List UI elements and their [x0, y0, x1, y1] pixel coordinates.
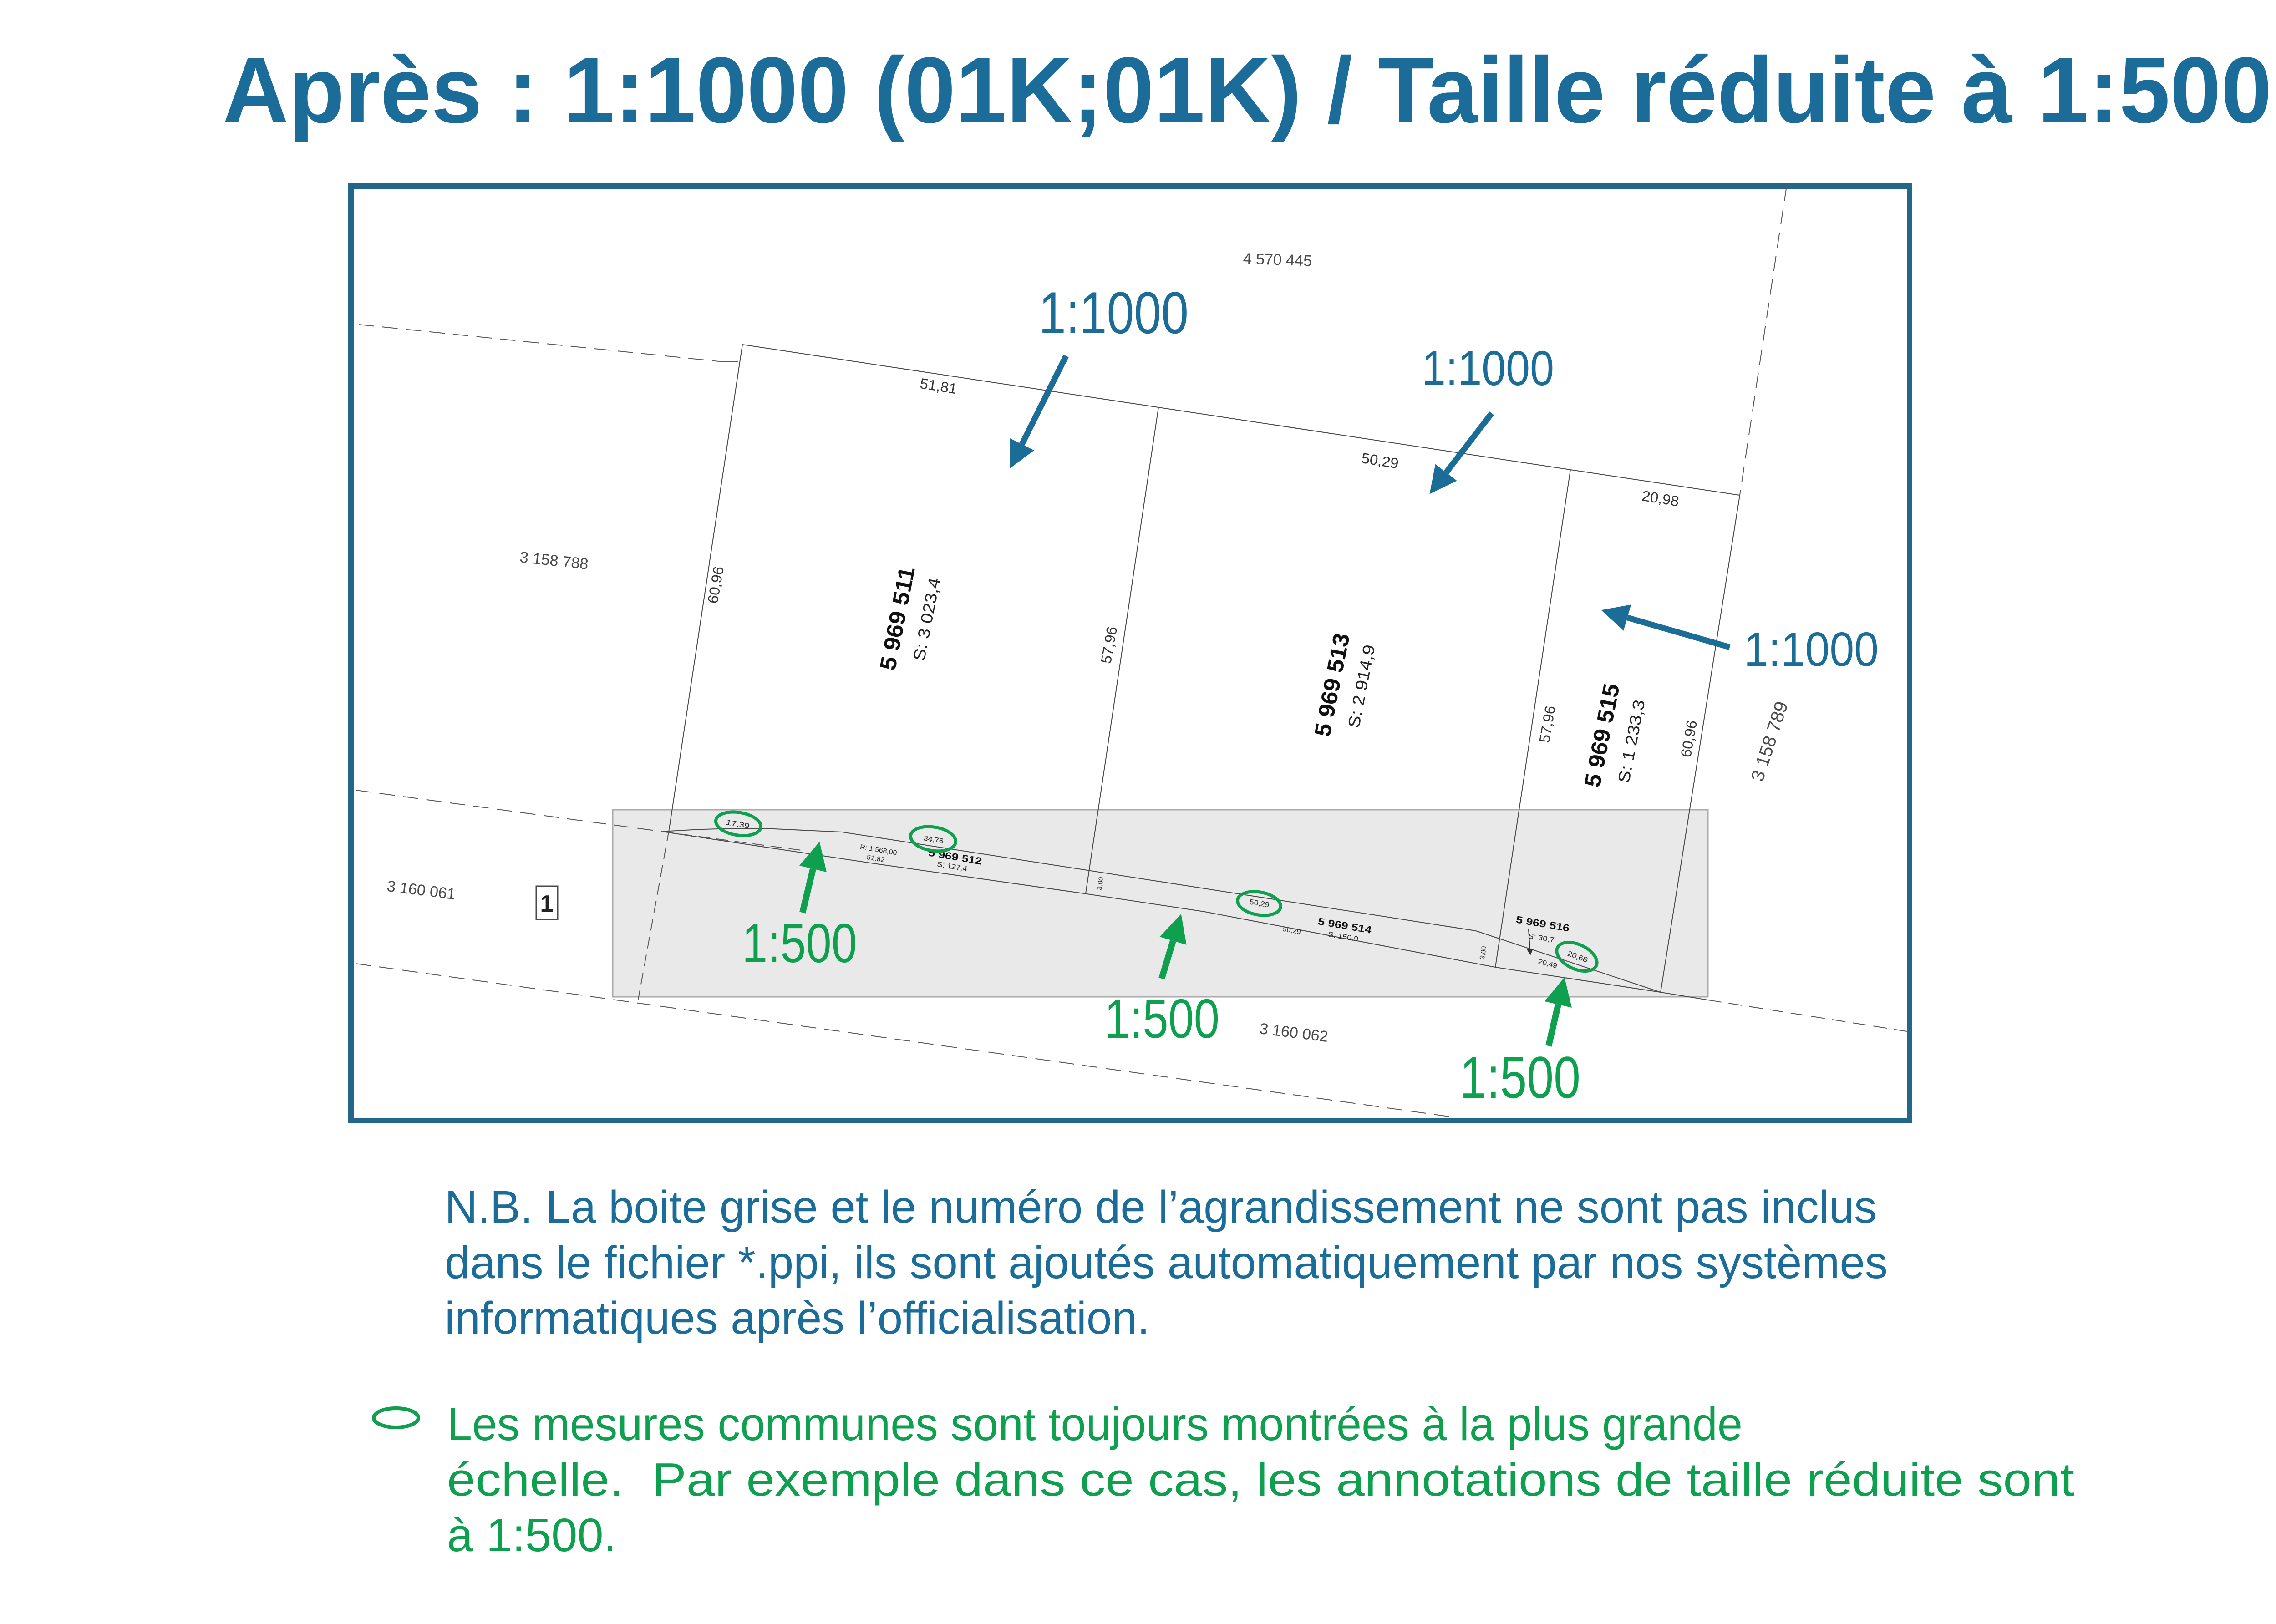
svg-text:1:1000: 1:1000	[1744, 623, 1879, 676]
svg-text:1:1000: 1:1000	[1422, 340, 1554, 396]
svg-text:1:500: 1:500	[1104, 988, 1219, 1050]
svg-text:1:1000: 1:1000	[1039, 279, 1189, 346]
svg-text:échelle. Par exemple dans ce: échelle. Par exemple dans ce cas, les an…	[447, 1453, 2074, 1506]
svg-text:1:500: 1:500	[742, 912, 857, 974]
svg-text:dans le fichier *.ppi, ils son: dans le fichier *.ppi, ils sont ajoutés …	[445, 1237, 1888, 1288]
svg-text:N.B. La boite grise et le numé: N.B. La boite grise et le numéro de l’ag…	[445, 1182, 1877, 1233]
svg-text:1: 1	[540, 891, 554, 917]
svg-text:1:500: 1:500	[1460, 1044, 1580, 1111]
svg-text:Après : 1:1000 (01K;01K) / Tai: Après : 1:1000 (01K;01K) / Taille réduit…	[223, 38, 2272, 142]
svg-text:informatiques après l’official: informatiques après l’officialisation.	[445, 1293, 1150, 1344]
svg-text:Les mesures communes sont touj: Les mesures communes sont toujours montr…	[447, 1398, 1743, 1450]
svg-text:à 1:500.: à 1:500.	[447, 1509, 616, 1561]
svg-text:4 570 445: 4 570 445	[1243, 250, 1312, 269]
